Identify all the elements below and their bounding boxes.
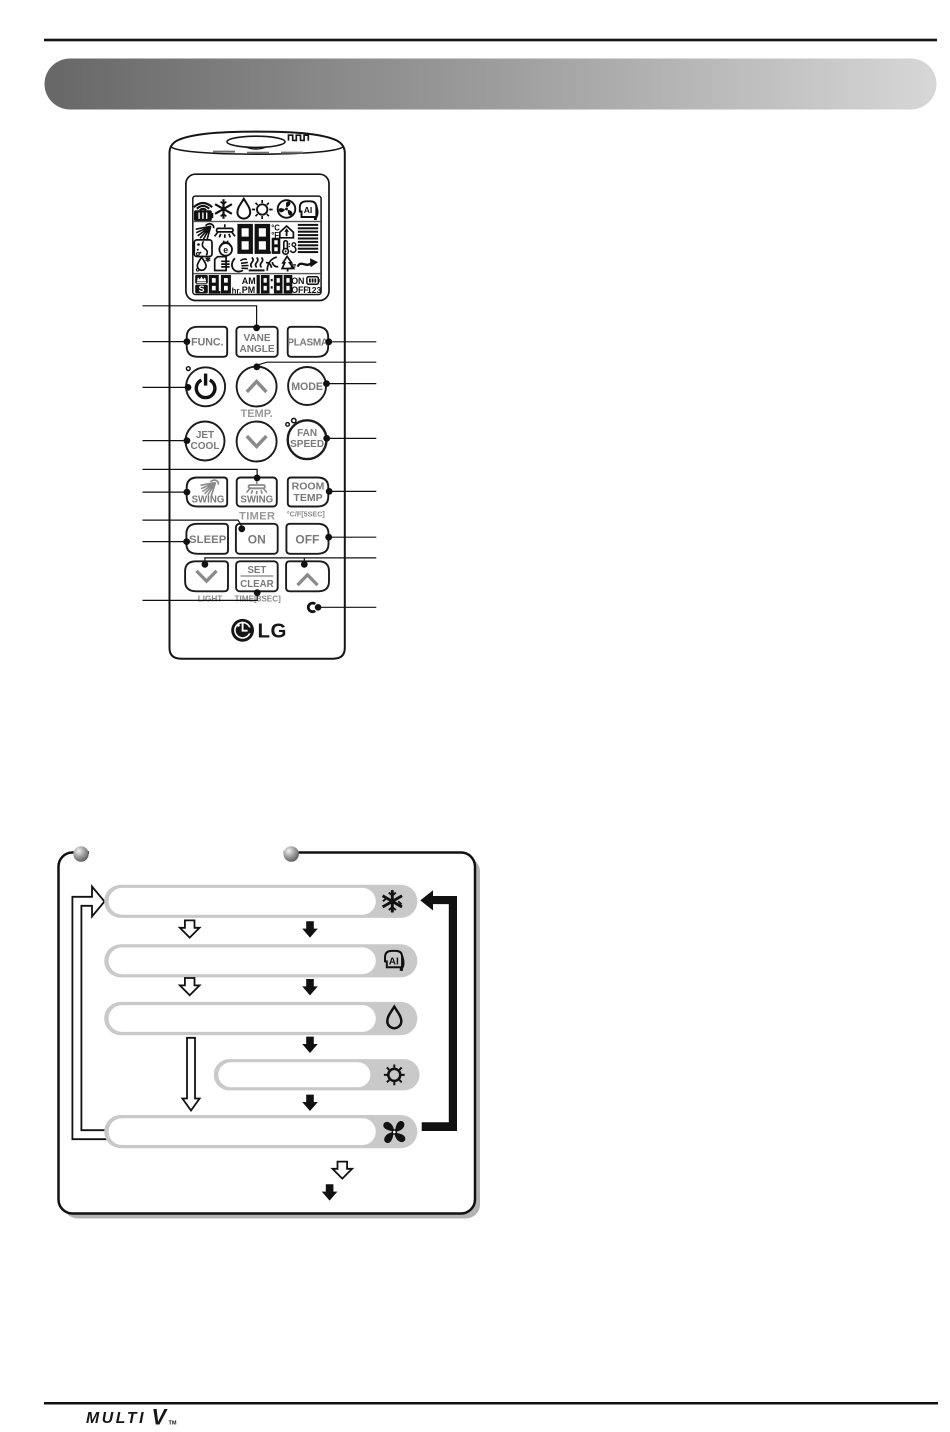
svg-text:ROOM: ROOM <box>292 480 325 492</box>
svg-text:°C/F[5SEC]: °C/F[5SEC] <box>287 510 325 519</box>
svg-text:LG: LG <box>258 619 287 642</box>
svg-text:TM: TM <box>169 1421 177 1427</box>
svg-text:FUNC.: FUNC. <box>191 337 223 349</box>
svg-text:S: S <box>199 284 205 294</box>
svg-text:AI: AI <box>389 956 399 967</box>
svg-text:123: 123 <box>307 285 321 295</box>
svg-text:PM: PM <box>242 285 255 295</box>
svg-text:hr.: hr. <box>232 287 242 296</box>
svg-text:SWING: SWING <box>192 495 225 506</box>
svg-text:ON: ON <box>248 532 266 546</box>
svg-text:PLASMA: PLASMA <box>287 338 328 349</box>
svg-text:e: e <box>223 245 228 255</box>
svg-text:MODE: MODE <box>291 381 323 393</box>
svg-text:TIME[3SEC]: TIME[3SEC] <box>234 595 281 604</box>
svg-text:AI: AI <box>304 205 313 215</box>
svg-text:VANE: VANE <box>243 333 270 344</box>
svg-text:TIMER: TIMER <box>239 511 275 523</box>
svg-text:ANGLE: ANGLE <box>240 344 275 355</box>
svg-text:TEMP: TEMP <box>293 492 322 504</box>
svg-text:SWING: SWING <box>240 495 273 506</box>
svg-text:LIGHT: LIGHT <box>198 595 223 604</box>
svg-text:FAN: FAN <box>297 428 317 439</box>
svg-text:SPEED: SPEED <box>290 439 324 450</box>
svg-text:SET: SET <box>247 565 266 576</box>
svg-text:CLEAR: CLEAR <box>240 579 273 590</box>
svg-text:OFF: OFF <box>295 532 319 546</box>
svg-text:SLEEP: SLEEP <box>189 534 227 546</box>
svg-text:TEMP.: TEMP. <box>240 408 272 420</box>
svg-text:JET: JET <box>196 430 214 441</box>
svg-text:V: V <box>152 1405 169 1430</box>
svg-text:COOL: COOL <box>191 441 220 452</box>
svg-text:MULTI: MULTI <box>86 1410 146 1427</box>
